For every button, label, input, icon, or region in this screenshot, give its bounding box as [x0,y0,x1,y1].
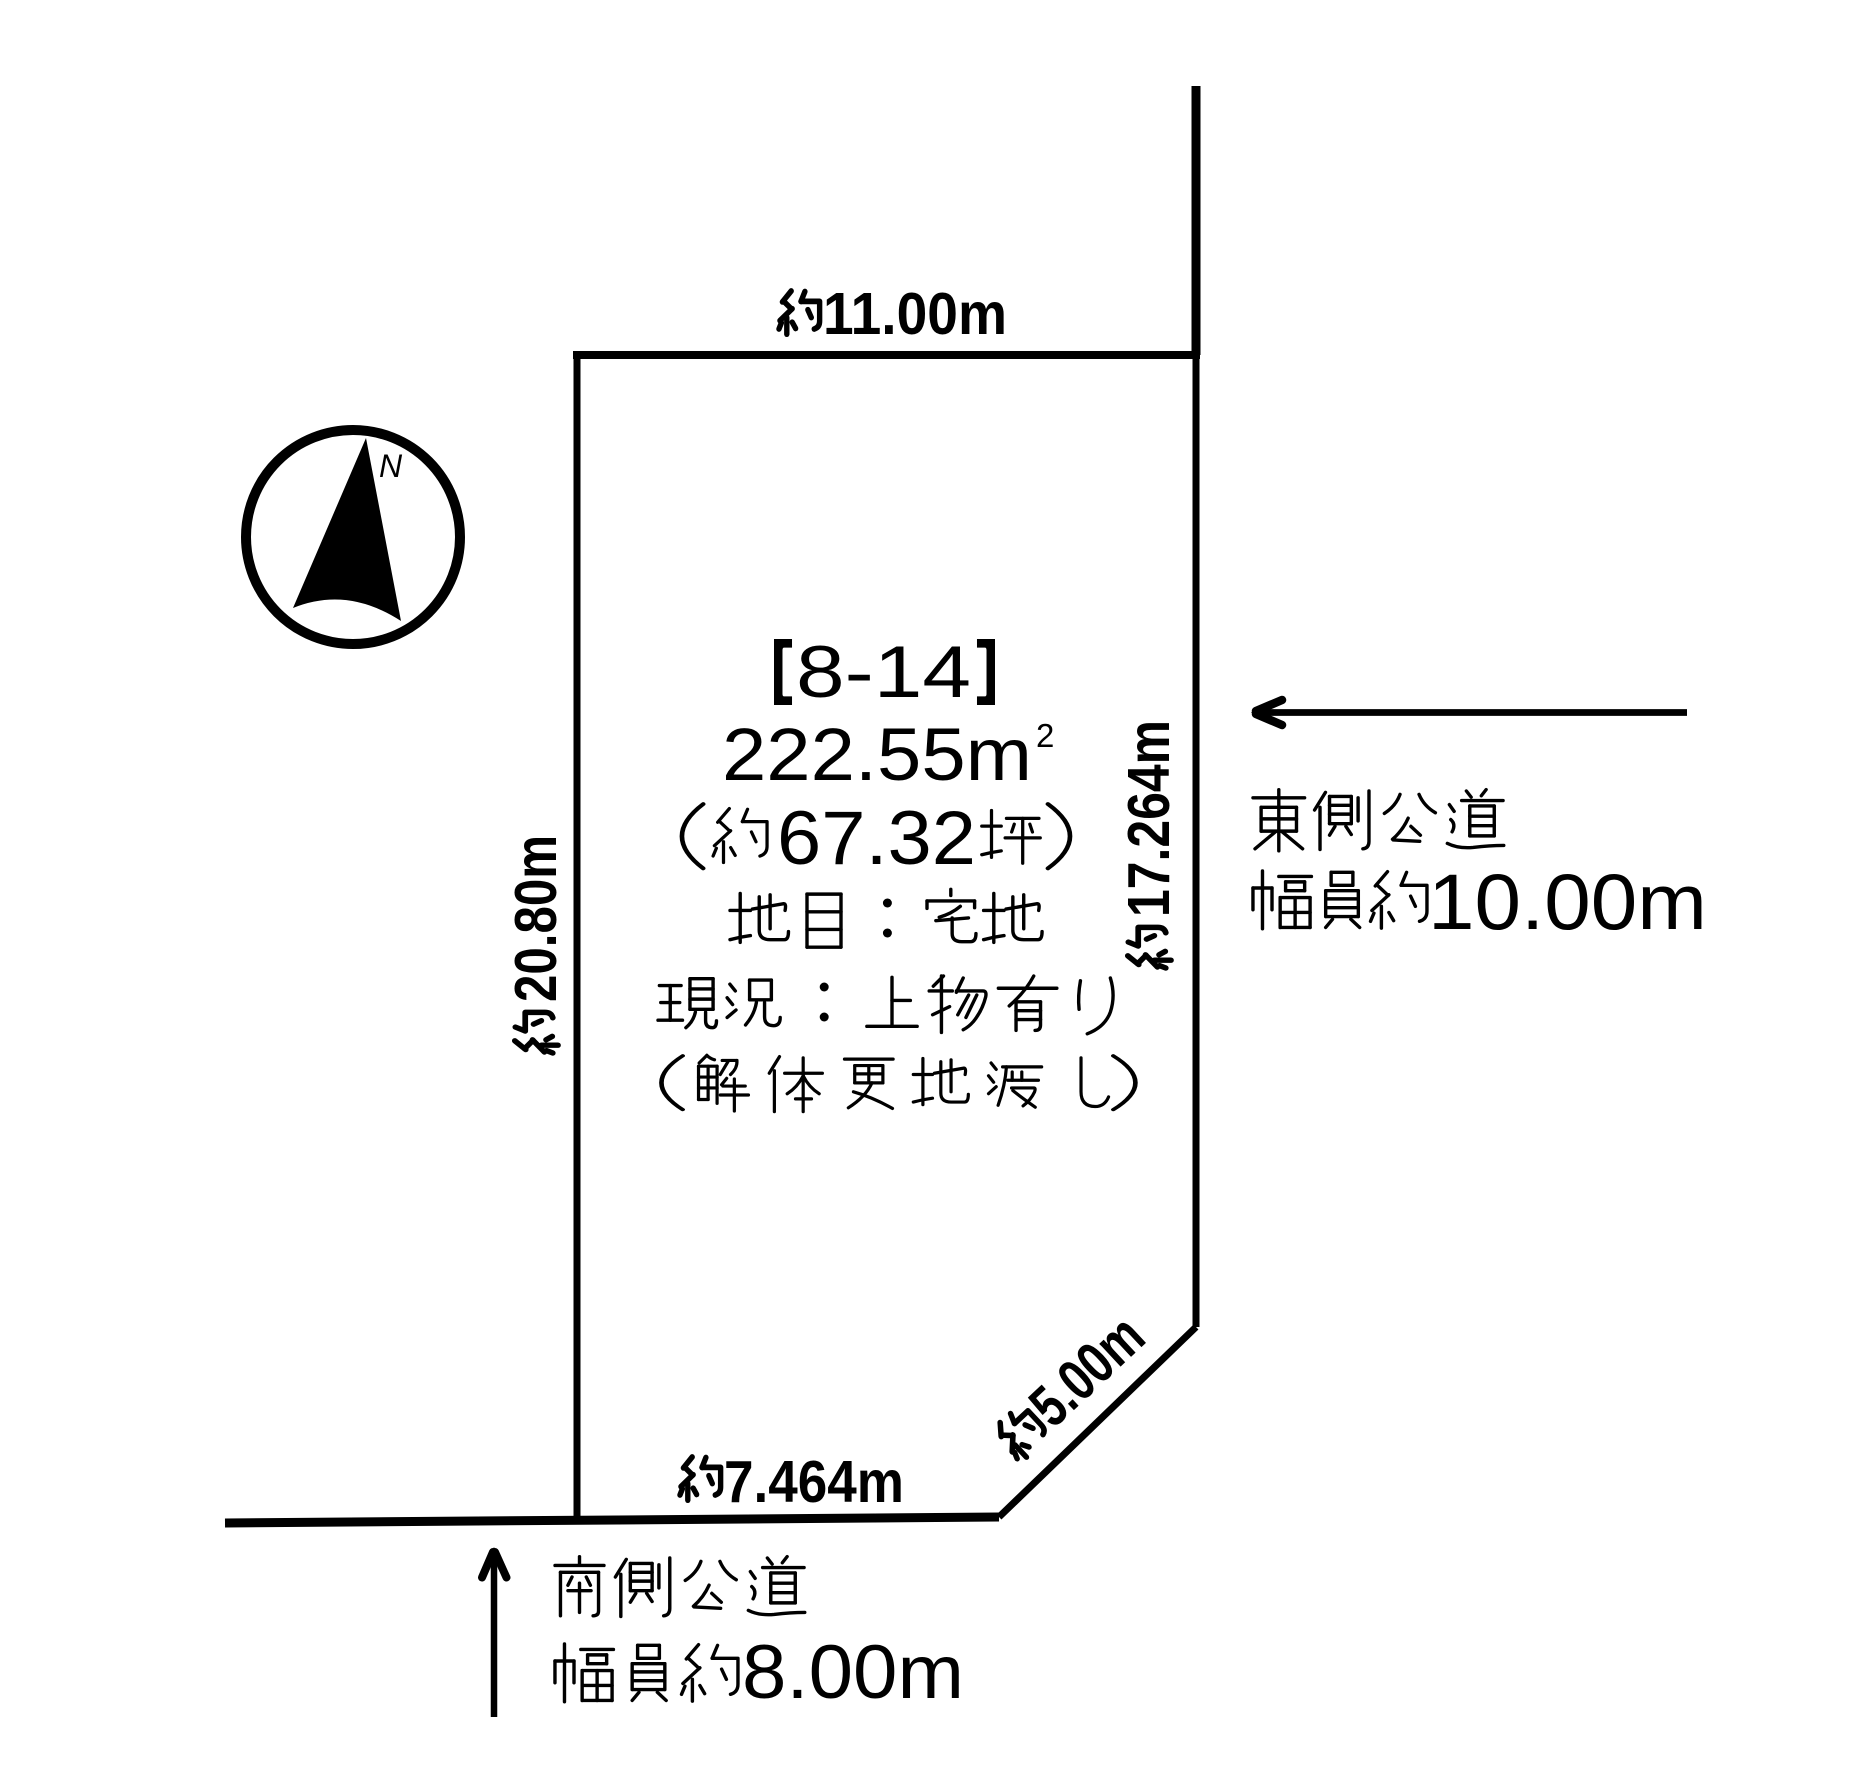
svg-text:N: N [379,448,403,484]
svg-text:7.464m: 7.464m [724,1449,904,1515]
svg-text:8-14: 8-14 [796,632,971,713]
svg-text:17.264m: 17.264m [1116,720,1182,917]
svg-text:10.00m: 10.00m [1428,857,1707,946]
svg-text:11.00m: 11.00m [823,281,1007,347]
svg-text:222.55m: 222.55m [722,713,1032,796]
svg-text:67.32: 67.32 [777,796,976,881]
svg-text:2: 2 [1036,717,1054,754]
svg-text:20.80m: 20.80m [503,835,569,1002]
svg-text:8.00m: 8.00m [742,1630,964,1715]
